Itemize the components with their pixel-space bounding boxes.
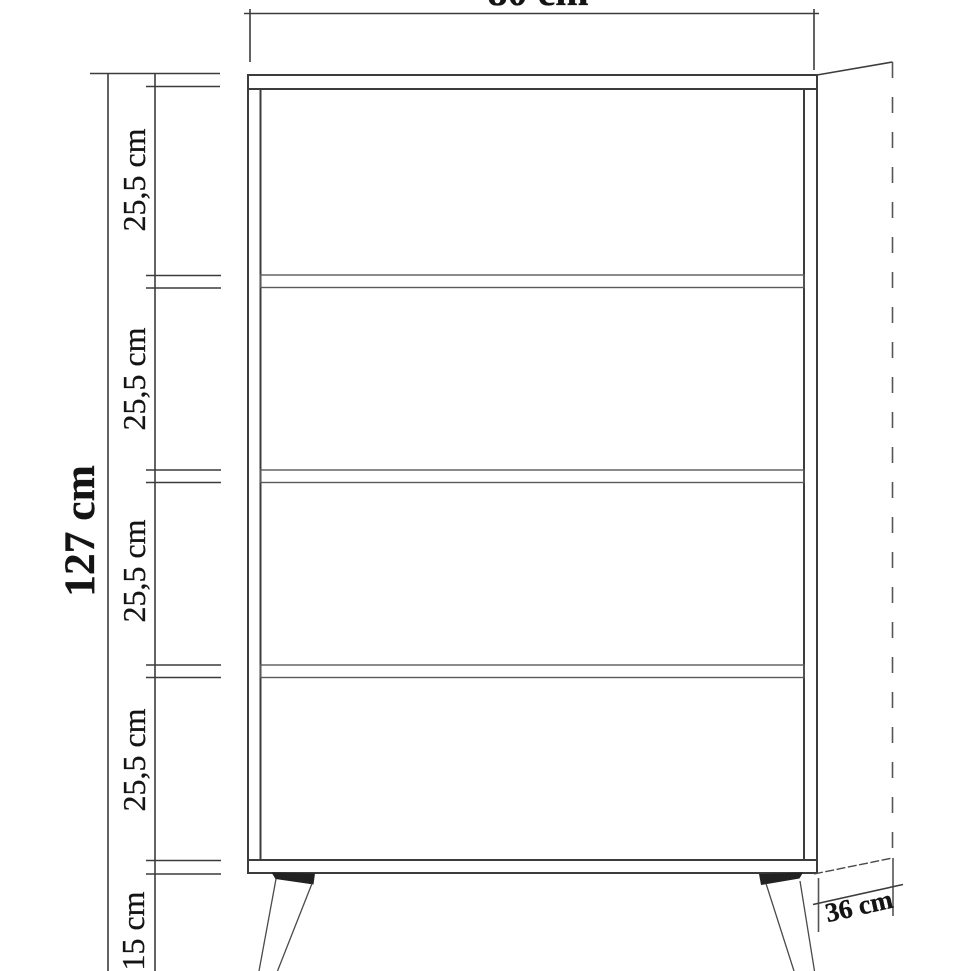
svg-text:25,5 cm: 25,5 cm <box>116 327 152 430</box>
svg-text:127 cm: 127 cm <box>56 465 104 597</box>
svg-text:25,5 cm: 25,5 cm <box>116 708 152 811</box>
svg-text:25,5 cm: 25,5 cm <box>116 128 152 231</box>
svg-text:80 cm: 80 cm <box>487 0 588 14</box>
svg-text:25,5 cm: 25,5 cm <box>116 519 152 622</box>
svg-text:15 cm: 15 cm <box>115 891 151 970</box>
